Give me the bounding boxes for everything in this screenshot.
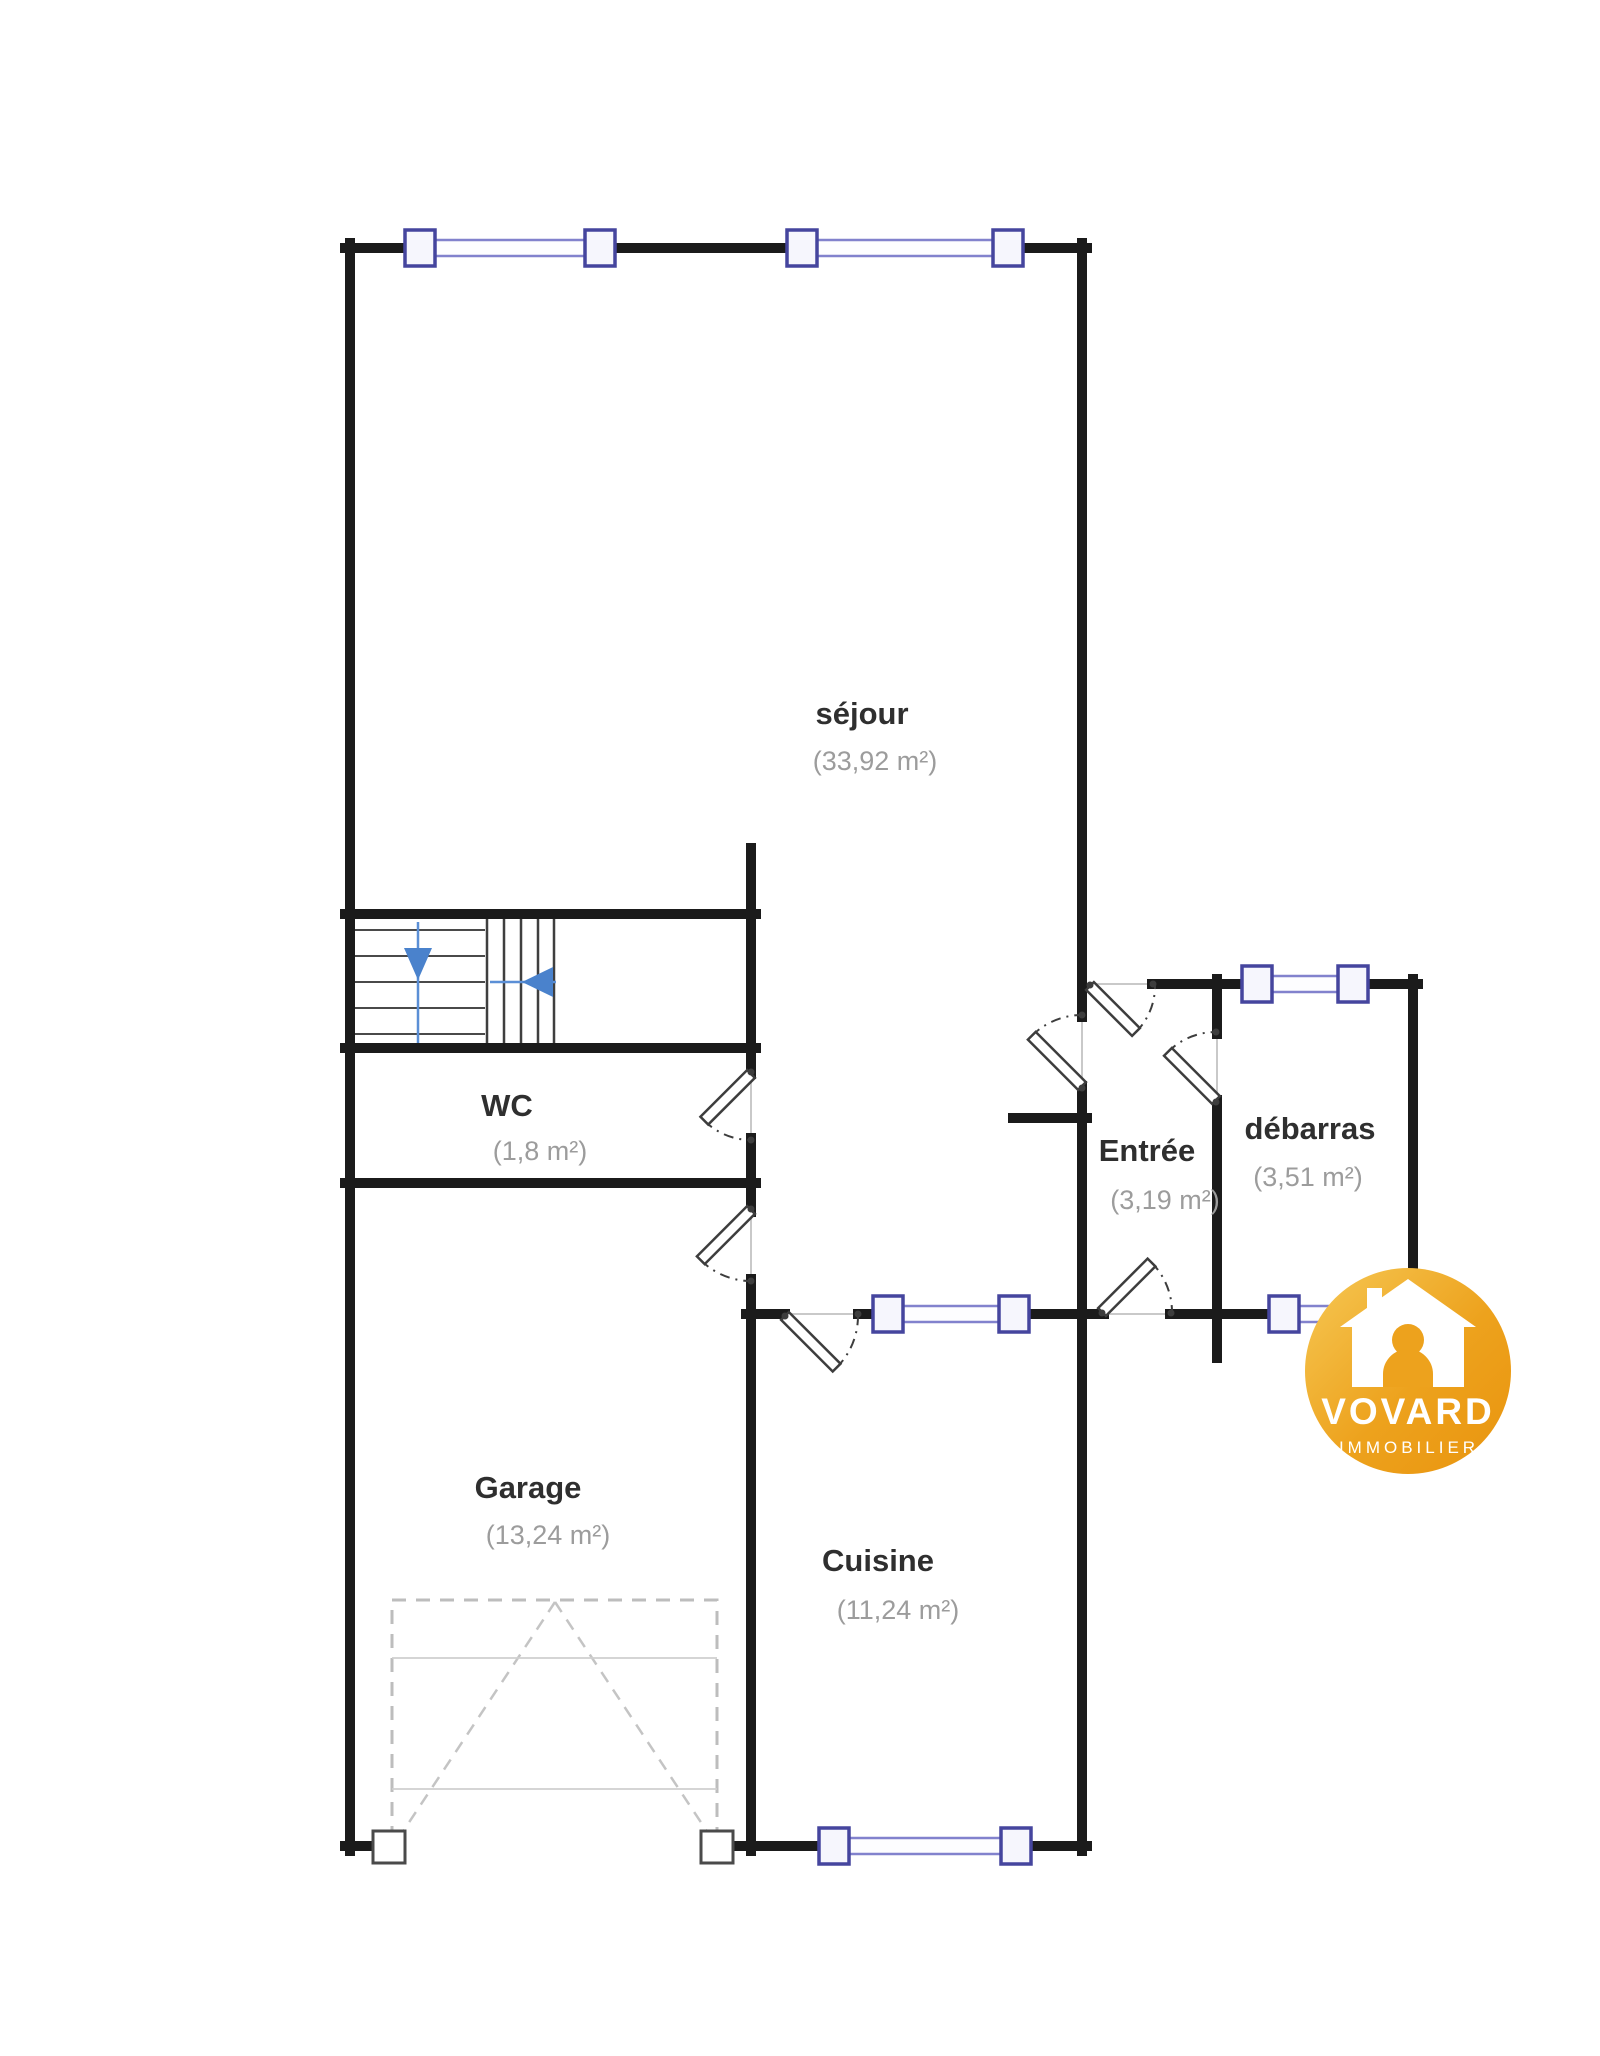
floor-plan-page: séjour (33,92 m²) WC (1,8 m²) Garage (13…	[0, 0, 1600, 2056]
door-entree-top	[1086, 982, 1155, 1036]
room-area-garage: (13,24 m²)	[486, 1520, 611, 1550]
logo-brand-text: VOVARD	[1321, 1391, 1495, 1432]
floor-plan: séjour (33,92 m²) WC (1,8 m²) Garage (13…	[0, 0, 1600, 2056]
window-debarras-top	[1242, 966, 1368, 1002]
room-name-cuisine: Cuisine	[822, 1543, 934, 1578]
room-area-wc: (1,8 m²)	[493, 1136, 588, 1166]
window-sejour-top-left	[405, 230, 615, 266]
room-name-entree: Entrée	[1099, 1133, 1195, 1168]
logo-tagline-text: IMMOBILIER	[1339, 1438, 1479, 1457]
room-area-cuisine: (11,24 m²)	[837, 1595, 960, 1625]
door-garage	[697, 1206, 755, 1281]
room-area-debarras: (3,51 m²)	[1253, 1162, 1363, 1192]
door-sejour-entree	[1028, 1015, 1086, 1090]
room-labels: séjour (33,92 m²) WC (1,8 m²) Garage (13…	[475, 696, 1376, 1625]
door-wc	[700, 1070, 754, 1140]
door-cuisine	[781, 1312, 858, 1371]
door-debarras	[1164, 1032, 1220, 1104]
garage-opening-posts	[373, 1831, 733, 1863]
room-name-garage: Garage	[475, 1470, 582, 1505]
room-name-debarras: débarras	[1245, 1111, 1376, 1146]
agency-logo: VOVARD IMMOBILIER	[1305, 1268, 1511, 1474]
window-cuisine-interior	[873, 1296, 1029, 1332]
room-name-wc: WC	[481, 1088, 533, 1123]
stairs	[355, 919, 556, 1044]
garage-post-left	[373, 1831, 405, 1863]
garage-post-right	[701, 1831, 733, 1863]
room-area-sejour: (33,92 m²)	[813, 746, 938, 776]
room-name-sejour: séjour	[815, 696, 908, 731]
door-front-entrance	[1098, 1259, 1172, 1316]
window-cuisine-bottom	[819, 1828, 1031, 1864]
garage-door	[392, 1600, 717, 1840]
window-sejour-top-right	[787, 230, 1023, 266]
stairs-down-arrow-icon	[404, 948, 432, 980]
room-area-entree: (3,19 m²)	[1110, 1185, 1220, 1215]
